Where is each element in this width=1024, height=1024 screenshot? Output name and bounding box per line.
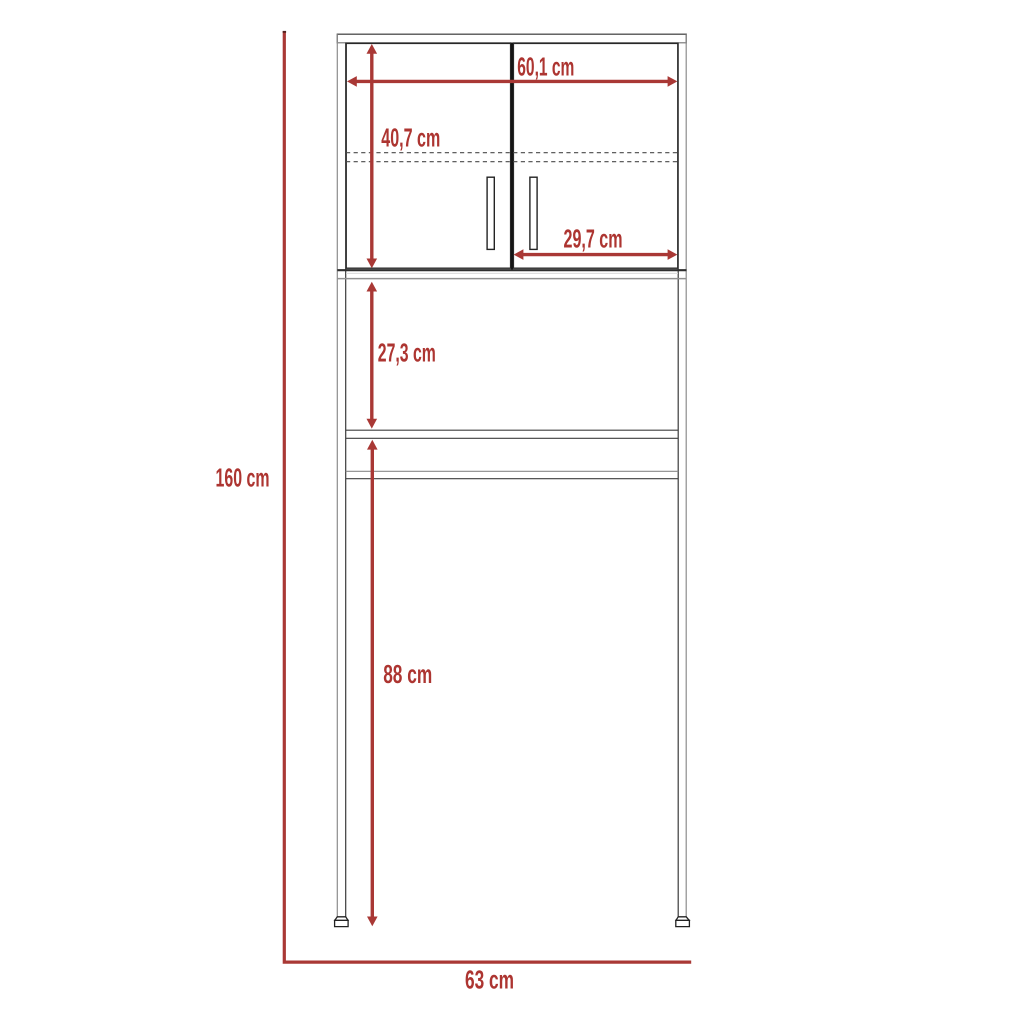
svg-text:160 cm: 160 cm xyxy=(216,463,270,493)
svg-text:27,3 cm: 27,3 cm xyxy=(378,338,436,368)
svg-text:40,7 cm: 40,7 cm xyxy=(381,123,440,153)
svg-text:29,7 cm: 29,7 cm xyxy=(564,224,623,254)
svg-text:60,1 cm: 60,1 cm xyxy=(517,52,574,82)
svg-text:63 cm: 63 cm xyxy=(465,965,514,995)
svg-text:88 cm: 88 cm xyxy=(383,659,432,689)
